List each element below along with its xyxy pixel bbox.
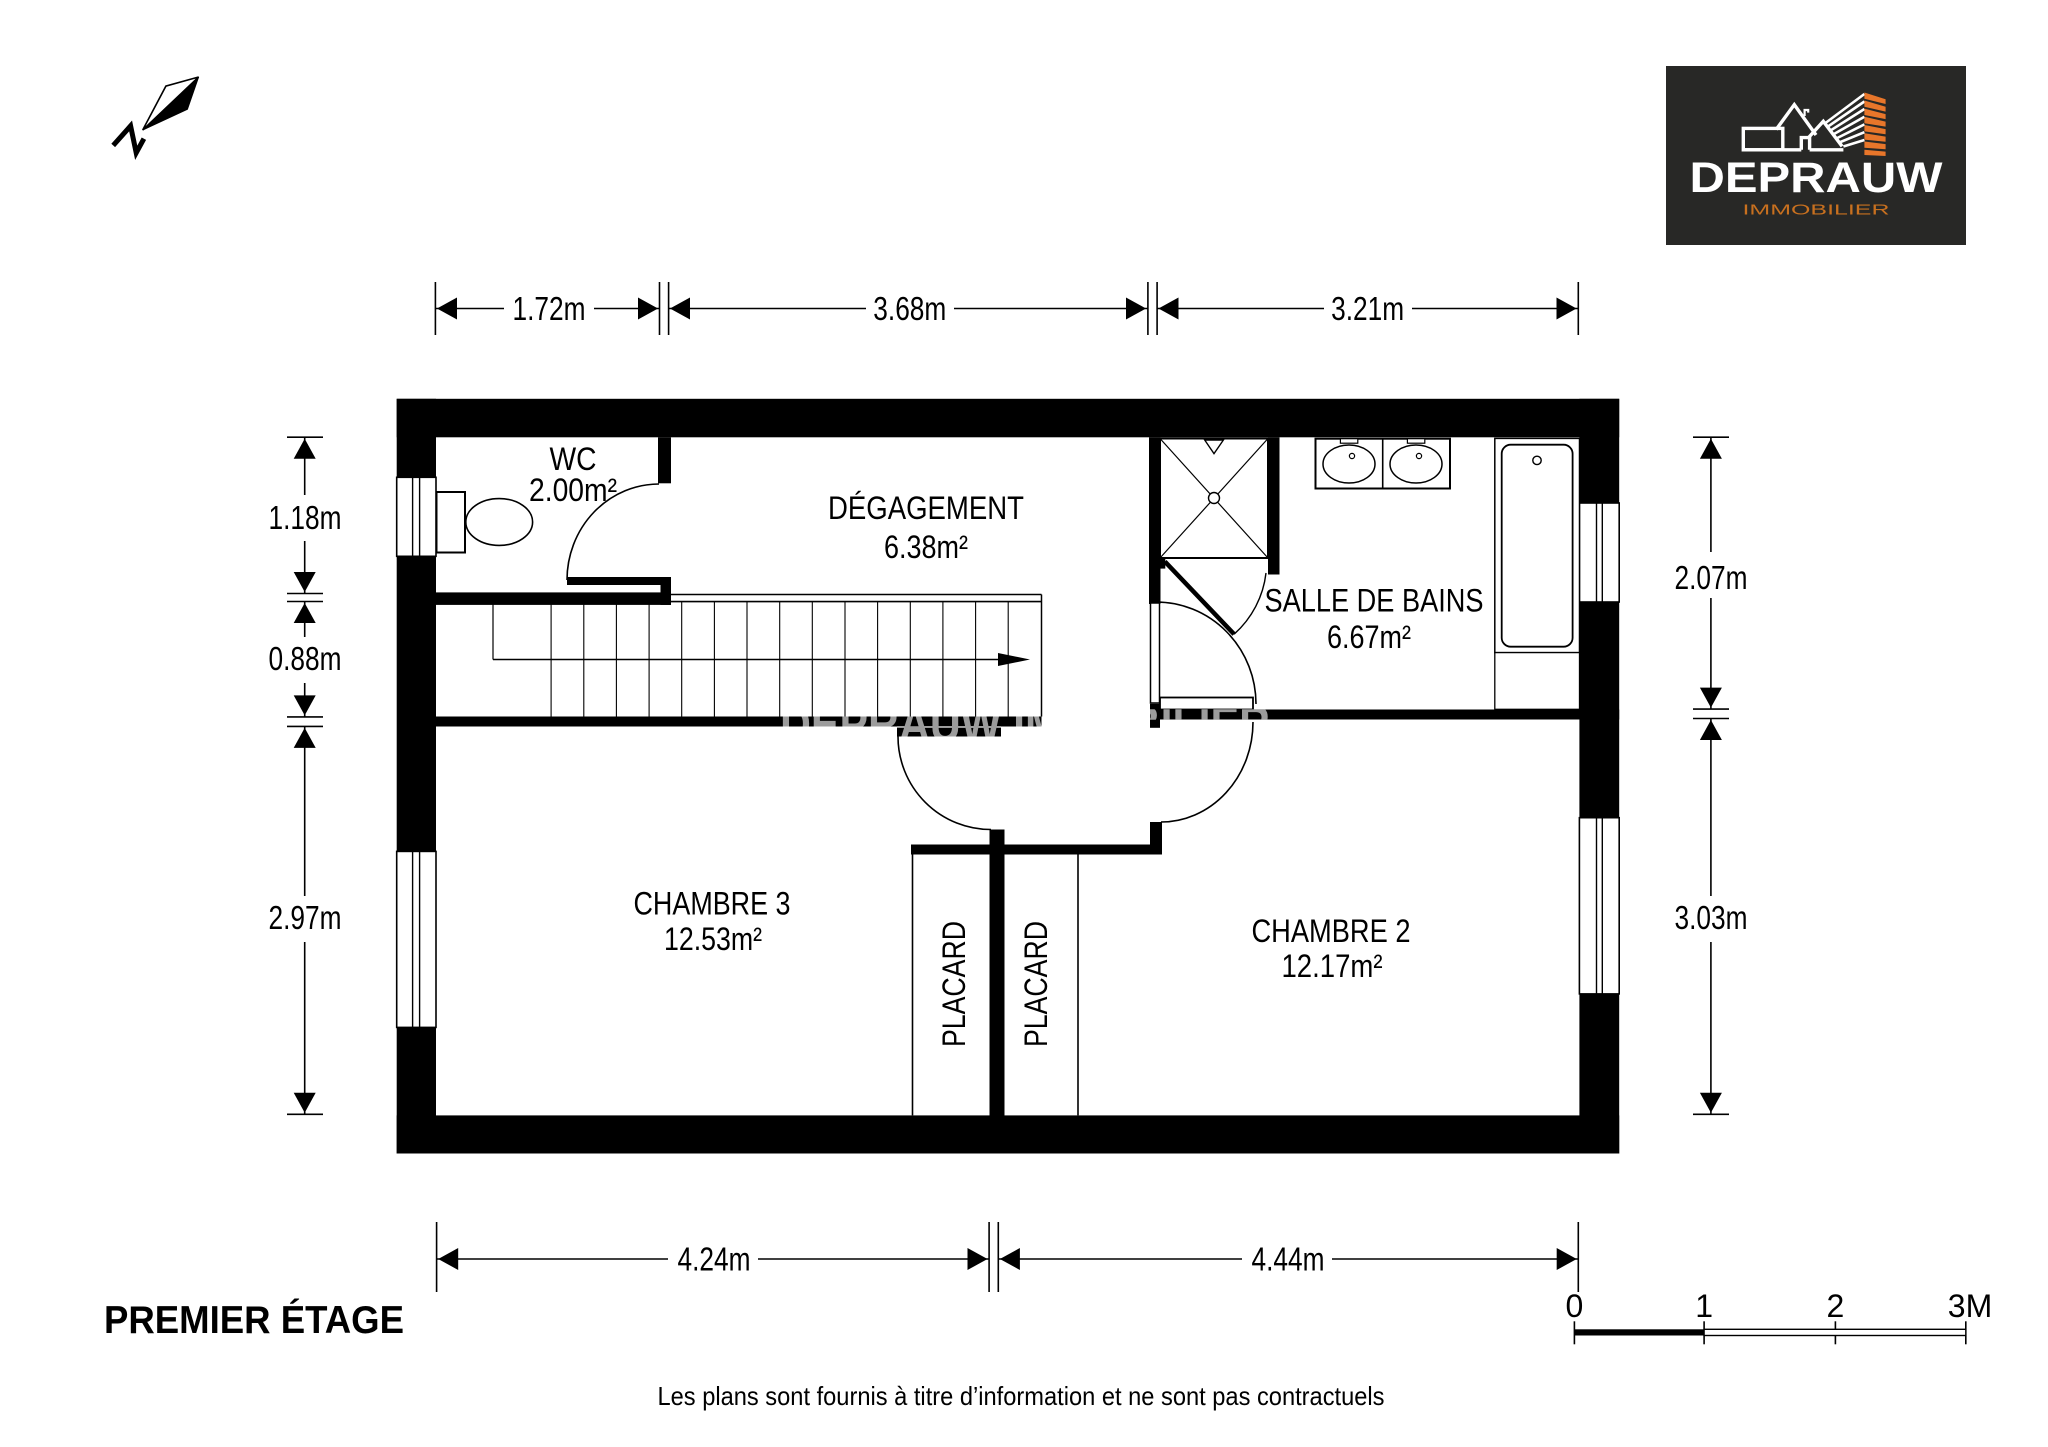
svg-text:1: 1	[1695, 1288, 1713, 1324]
svg-text:0.88m: 0.88m	[269, 640, 342, 677]
svg-text:Les plans sont fournis à titre: Les plans sont fournis à titre d’informa…	[658, 1381, 1385, 1411]
svg-text:6.38m²: 6.38m²	[884, 529, 968, 565]
svg-text:1.72m: 1.72m	[513, 290, 586, 327]
svg-text:PREMIER ÉTAGE: PREMIER ÉTAGE	[104, 1298, 404, 1342]
svg-text:3.21m: 3.21m	[1331, 290, 1404, 327]
svg-text:CHAMBRE 2: CHAMBRE 2	[1252, 913, 1411, 949]
svg-text:4.44m: 4.44m	[1252, 1241, 1325, 1278]
svg-text:2: 2	[1827, 1288, 1845, 1324]
svg-text:SALLE DE BAINS: SALLE DE BAINS	[1265, 583, 1484, 619]
svg-text:6.67m²: 6.67m²	[1327, 619, 1411, 655]
svg-text:4.24m: 4.24m	[678, 1241, 751, 1278]
svg-text:12.17m²: 12.17m²	[1282, 948, 1383, 984]
svg-text:PLACARD: PLACARD	[936, 921, 972, 1047]
svg-text:0: 0	[1566, 1288, 1584, 1324]
svg-text:DEPRAUW: DEPRAUW	[1690, 154, 1943, 202]
svg-text:1.18m: 1.18m	[269, 499, 342, 536]
svg-text:3.03m: 3.03m	[1675, 899, 1748, 936]
svg-text:2.07m: 2.07m	[1675, 559, 1748, 596]
svg-text:IMMOBILIER: IMMOBILIER	[1743, 202, 1890, 219]
svg-text:3M: 3M	[1948, 1288, 1992, 1324]
svg-text:2.97m: 2.97m	[269, 899, 342, 936]
svg-text:12.53m²: 12.53m²	[664, 921, 762, 957]
svg-text:PLACARD: PLACARD	[1018, 921, 1054, 1047]
svg-text:DÉGAGEMENT: DÉGAGEMENT	[828, 490, 1024, 526]
svg-text:2.00m²: 2.00m²	[529, 472, 617, 508]
svg-text:CHAMBRE 3: CHAMBRE 3	[634, 886, 791, 922]
svg-text:3.68m: 3.68m	[873, 290, 946, 327]
